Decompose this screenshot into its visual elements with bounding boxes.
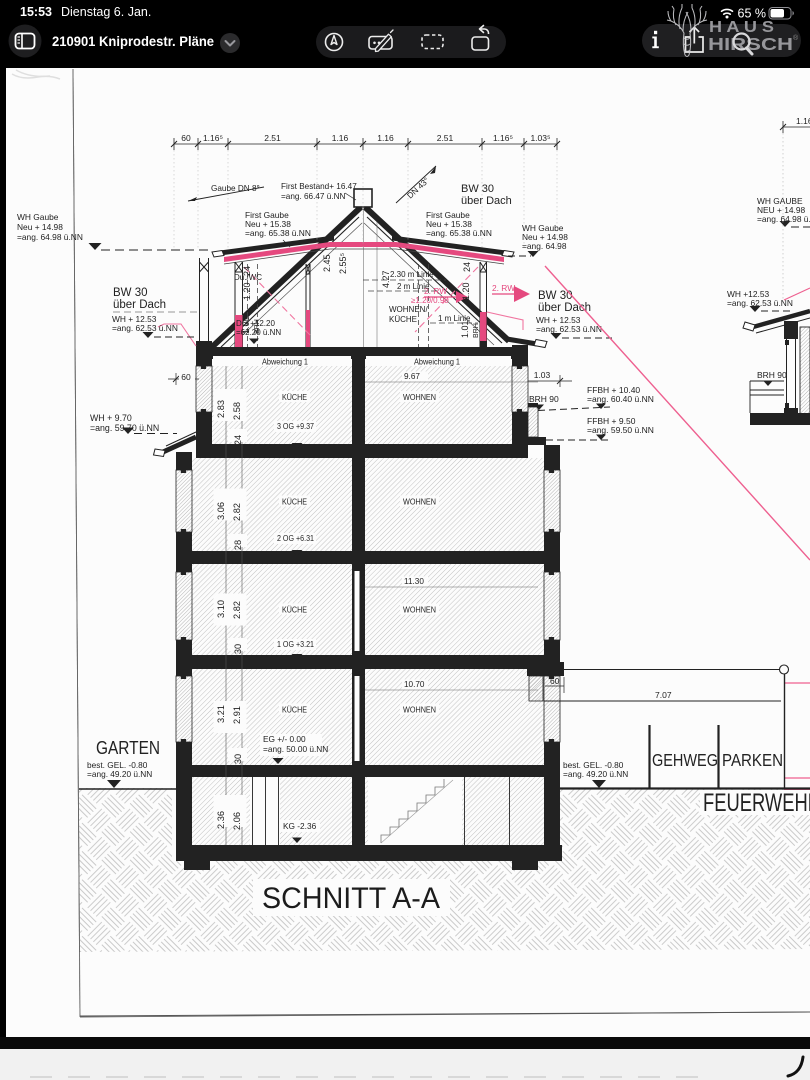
svg-text:2 m Linie: 2 m Linie [397,282,430,291]
svg-text:=ang. 62.53 ü.NN: =ang. 62.53 ü.NN [112,323,178,333]
svg-text:2.58: 2.58 [232,402,242,420]
svg-text:=ang. 65.38 ü.NN: =ang. 65.38 ü.NN [245,228,311,238]
svg-text:1.03: 1.03 [534,370,551,380]
svg-text:2.82: 2.82 [232,601,242,619]
svg-text:PARKEN: PARKEN [722,750,783,770]
svg-text:KÜCHE: KÜCHE [282,605,307,615]
svg-text:KÜCHE: KÜCHE [282,497,307,507]
svg-text:Abweichung 1: Abweichung 1 [262,358,308,367]
svg-text:1.03⁵: 1.03⁵ [530,133,550,143]
svg-text:3.10: 3.10 [216,600,226,618]
svg-text:Gaube DN 8°: Gaube DN 8° [211,184,260,193]
svg-text:28: 28 [233,540,243,550]
svg-text:2.82: 2.82 [232,503,242,521]
svg-text:1.16⁵: 1.16⁵ [796,116,810,126]
svg-text:3.06: 3.06 [216,502,226,520]
svg-text:WOHNEN: WOHNEN [403,392,436,402]
svg-text:2.45: 2.45 [322,254,332,272]
svg-text:=ang. 65.38 ü.NN: =ang. 65.38 ü.NN [426,228,492,238]
svg-text:1.16: 1.16 [377,133,394,143]
svg-text:FEUERWEHR: FEUERWEHR [703,789,810,817]
svg-text:2. RW: 2. RW [492,283,515,293]
svg-text:24: 24 [462,262,472,272]
svg-text:=ang. 59.50 ü.NN: =ang. 59.50 ü.NN [587,425,654,435]
svg-text:über Dach: über Dach [113,299,166,311]
svg-text:KG -2.36: KG -2.36 [283,821,317,831]
svg-text:Dienstag 6. Jan.: Dienstag 6. Jan. [61,5,151,19]
svg-text:GEHWEG: GEHWEG [652,750,718,770]
svg-text:GARTEN: GARTEN [96,738,160,758]
svg-text:15:53: 15:53 [20,5,52,19]
svg-text:2.91: 2.91 [232,706,242,724]
svg-text:®: ® [793,34,799,42]
svg-text:30: 30 [233,644,243,654]
svg-text:10.70: 10.70 [404,680,425,689]
svg-text:BRH 90: BRH 90 [757,370,787,380]
svg-text:WOHNEN: WOHNEN [403,497,436,507]
svg-text:11.30: 11.30 [404,577,424,586]
svg-text:1.16⁵: 1.16⁵ [203,133,223,143]
svg-text:WH Gaube: WH Gaube [17,212,59,222]
svg-text:First Bestand+ 16.47: First Bestand+ 16.47 [281,182,357,191]
svg-text:SCHNITT A-A: SCHNITT A-A [262,882,440,915]
svg-text:BRH: BRH [254,319,261,334]
svg-text:210901 Kniprodestr. Pläne: 210901 Kniprodestr. Pläne [52,34,214,49]
svg-text:WOHNEN: WOHNEN [403,705,436,715]
svg-text:60: 60 [181,133,191,143]
svg-text:über Dach: über Dach [461,195,512,207]
svg-text:1.16⁵: 1.16⁵ [493,133,513,143]
svg-text:BW 30: BW 30 [461,183,494,195]
svg-text:3 OG +9.37: 3 OG +9.37 [277,421,314,431]
svg-text:1.01: 1.01 [241,316,251,334]
svg-text:24: 24 [233,435,243,445]
svg-text:2.36: 2.36 [216,811,226,829]
svg-text:KÜCHE: KÜCHE [389,315,417,324]
svg-text:Neu + 14.98: Neu + 14.98 [17,222,63,232]
svg-text:=ang. 49.20 ü.NN: =ang. 49.20 ü.NN [563,769,628,779]
svg-text:=ang. 60.40 ü.NN: =ang. 60.40 ü.NN [587,394,654,404]
svg-text:60: 60 [550,676,560,686]
svg-text:BW 30: BW 30 [113,287,148,299]
svg-text:BRH 90: BRH 90 [529,394,559,404]
svg-text:2.55⁵: 2.55⁵ [338,252,348,274]
svg-text:60: 60 [181,372,191,382]
svg-text:=ang. 62.53 ü.NN: =ang. 62.53 ü.NN [536,324,602,334]
svg-text:2.51: 2.51 [437,133,454,143]
svg-text:=ang. 49.20 ü.NN: =ang. 49.20 ü.NN [87,769,152,779]
svg-text:BRH: BRH [473,323,480,338]
svg-text:4.27: 4.27 [381,270,391,288]
svg-text:2.06: 2.06 [232,812,242,830]
svg-text:WH + 9.70: WH + 9.70 [90,413,132,423]
svg-text:≥1.20/0.90: ≥1.20/0.90 [411,296,449,305]
svg-text:7.07: 7.07 [655,690,672,700]
svg-text:2.83: 2.83 [216,400,226,418]
svg-text:2.51: 2.51 [264,133,281,143]
svg-text:WOHNEN/: WOHNEN/ [389,305,428,314]
svg-text:=ang. 64.98 ü.NN: =ang. 64.98 ü.NN [17,232,83,242]
svg-text:1.20: 1.20 [461,282,471,300]
svg-text:WOHNEN: WOHNEN [403,605,436,615]
svg-text:1 OG +3.21: 1 OG +3.21 [277,639,314,649]
svg-text:24: 24 [242,266,252,276]
svg-text:KÜCHE: KÜCHE [282,705,307,715]
svg-text:=ang. 64.98: =ang. 64.98 [522,241,567,251]
svg-text:Abweichung 1: Abweichung 1 [414,358,460,367]
svg-text:2 OG +6.31: 2 OG +6.31 [277,533,314,543]
svg-text:1.16: 1.16 [332,133,349,143]
svg-text:1.01: 1.01 [460,320,470,338]
svg-text:30: 30 [233,754,243,764]
svg-text:=ang. 50.00 ü.NN: =ang. 50.00 ü.NN [263,744,328,754]
svg-text:3.21: 3.21 [216,705,226,723]
svg-text:EG +/- 0.00: EG +/- 0.00 [263,734,306,744]
svg-text:9.67: 9.67 [404,372,420,381]
svg-text:=ang. 66.47 ü.NN: =ang. 66.47 ü.NN [281,192,345,201]
svg-text:KÜCHE: KÜCHE [282,392,307,402]
svg-text:2.30 m Linie: 2.30 m Linie [390,270,434,279]
svg-text:1.20: 1.20 [242,282,252,300]
